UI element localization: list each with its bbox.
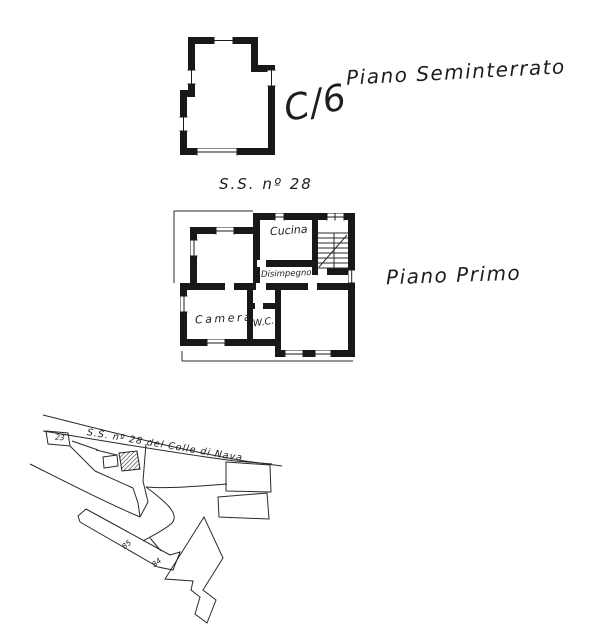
first-floor-plan-title: Piano Primo [386, 263, 522, 288]
room-label-disimpegno: Disimpegno [261, 269, 312, 279]
basement-plan-drawing [180, 37, 276, 156]
stairs [318, 233, 348, 268]
first-floor-plan-drawing [174, 211, 355, 361]
subject-building-hatched [119, 451, 140, 471]
room-label-cucina: Cucina [270, 224, 308, 238]
parcel-label-23: 23 [55, 434, 65, 442]
floor-plan-sheet: Piano Seminterrato C/6 S.S. nº 28 Piano … [0, 0, 614, 631]
room-label-camera: Camera [195, 311, 254, 325]
road-reference-caption: S.S. nº 28 [219, 177, 313, 192]
